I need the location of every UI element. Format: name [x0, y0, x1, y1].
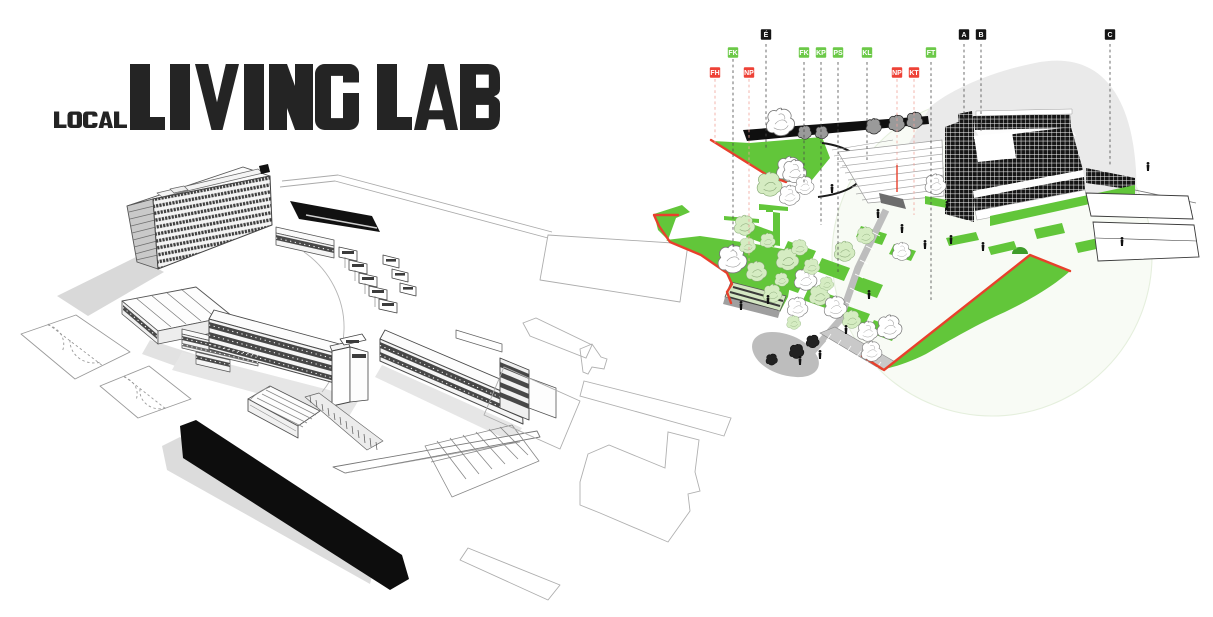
- svg-text:FK: FK: [728, 50, 737, 57]
- svg-text:KL: KL: [862, 50, 872, 57]
- svg-text:NP: NP: [744, 70, 754, 77]
- svg-text:A: A: [961, 32, 966, 39]
- svg-text:FT: FT: [927, 50, 936, 57]
- svg-text:FK: FK: [799, 50, 808, 57]
- svg-text:NP: NP: [892, 70, 902, 77]
- svg-text:FH: FH: [710, 70, 719, 77]
- svg-text:KP: KP: [816, 50, 826, 57]
- svg-text:B: B: [978, 32, 983, 39]
- svg-text:KT: KT: [909, 70, 919, 77]
- svg-text:C: C: [1107, 32, 1112, 39]
- svg-text:É: É: [764, 30, 769, 39]
- svg-text:PS: PS: [833, 50, 843, 57]
